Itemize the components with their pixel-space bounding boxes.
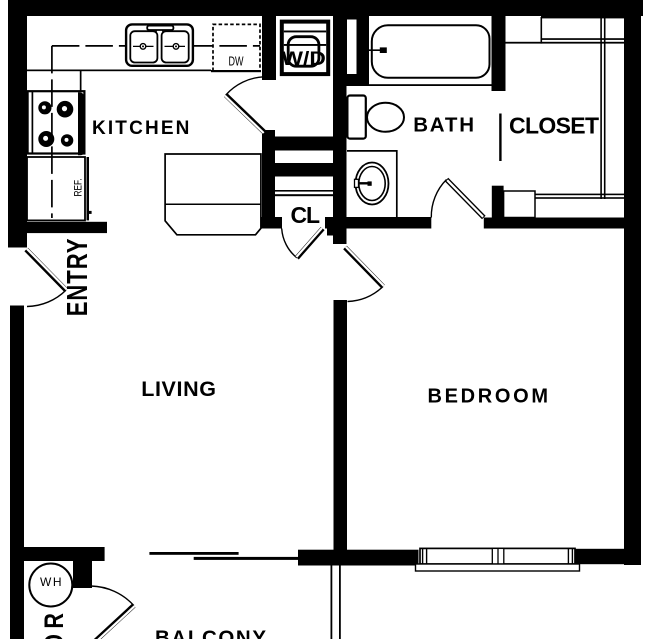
svg-text:W/D: W/D [282, 49, 326, 70]
svg-text:CLOSET: CLOSET [509, 113, 599, 139]
svg-text:DW: DW [229, 54, 244, 68]
svg-text:STOR: STOR [40, 613, 70, 639]
svg-text:CL: CL [291, 202, 321, 228]
svg-text:LIVING: LIVING [141, 377, 216, 401]
svg-text:WH: WH [40, 575, 62, 589]
svg-text:REF.: REF. [73, 179, 85, 197]
svg-text:ENTRY: ENTRY [62, 238, 94, 316]
svg-text:BALCONY: BALCONY [155, 626, 266, 639]
